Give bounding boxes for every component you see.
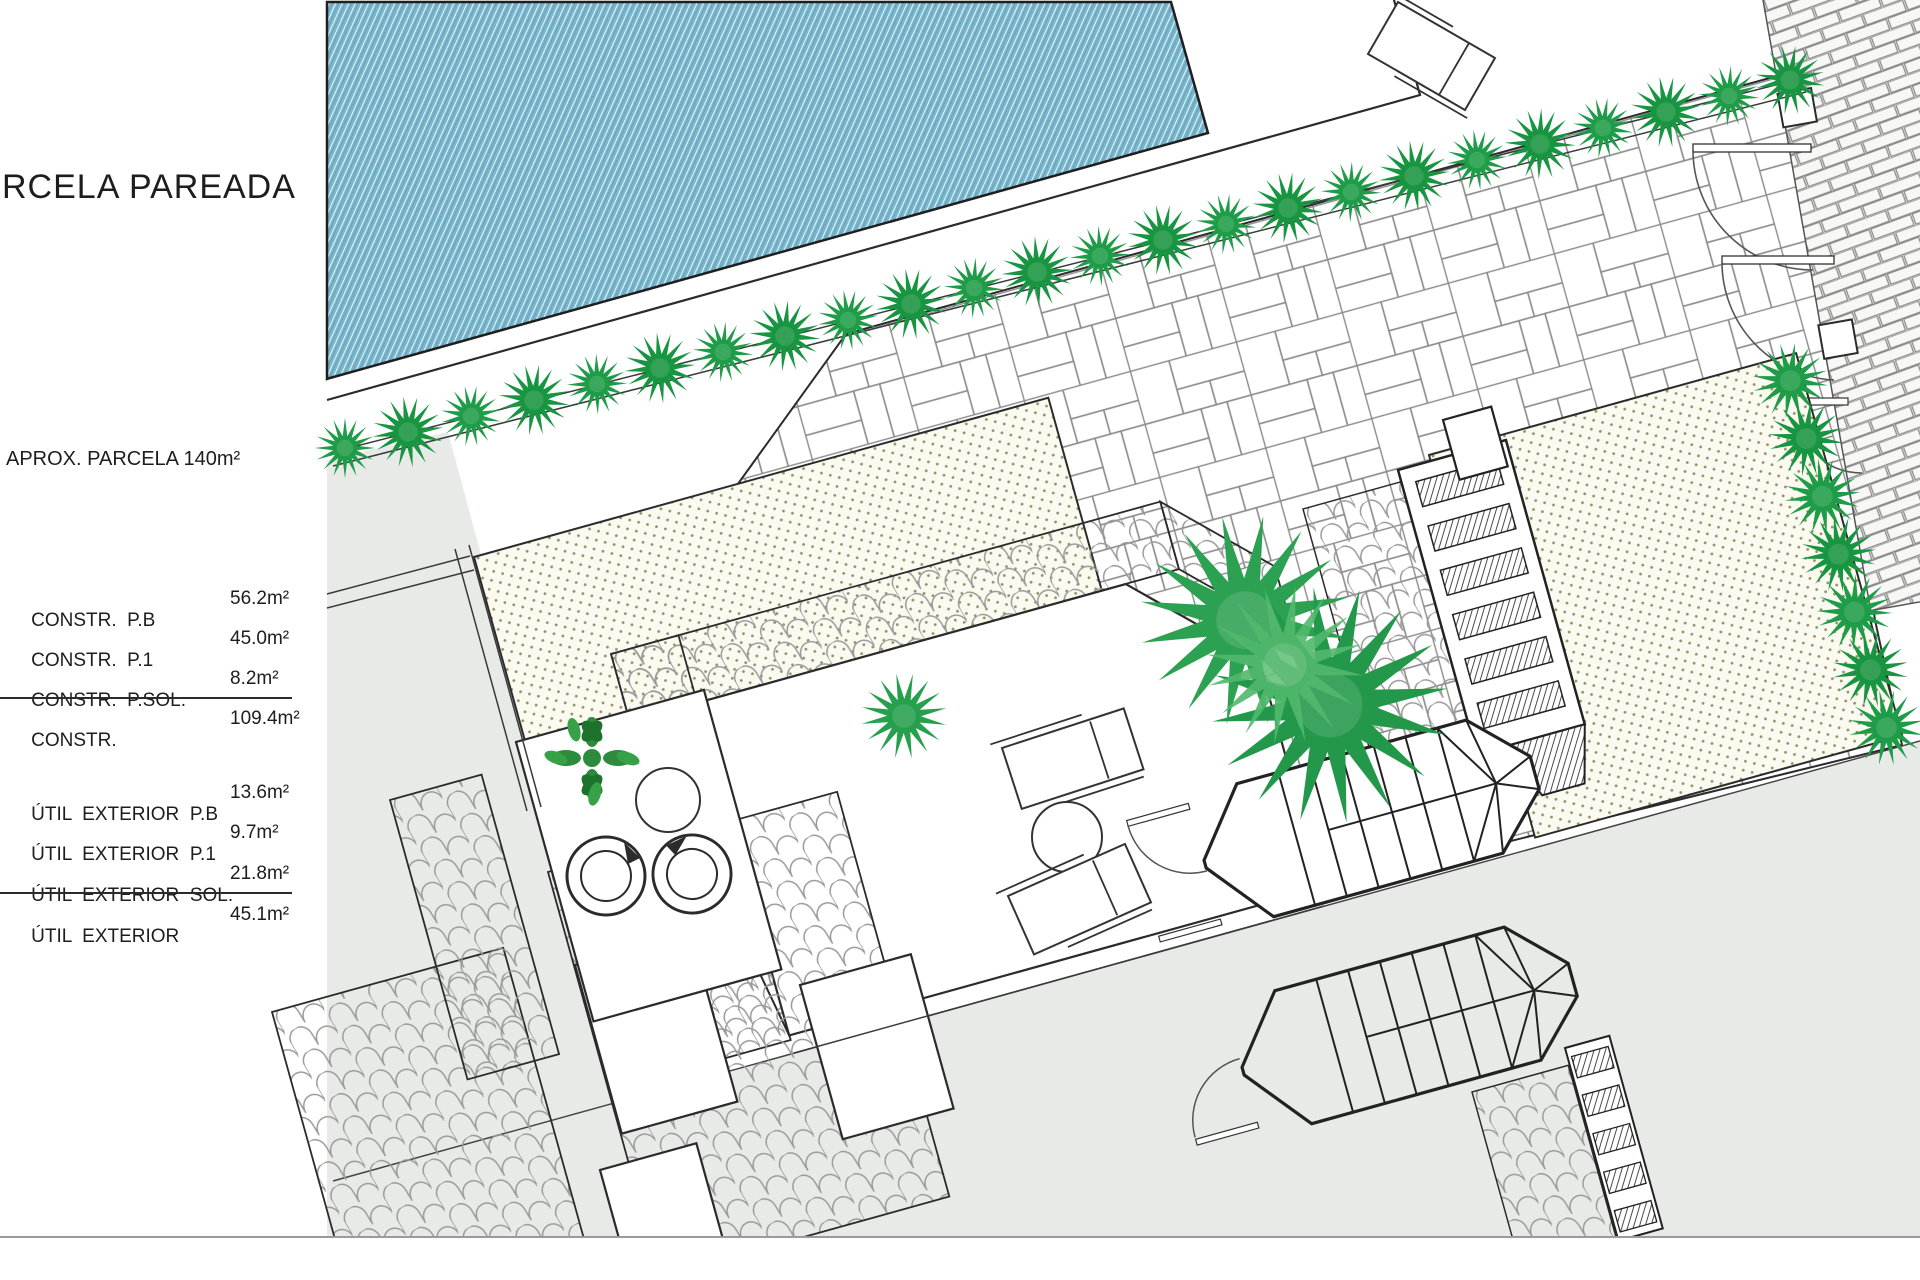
row-label: CONSTR.: [31, 730, 117, 751]
legend-panel: RCELA PAREADA APROX. PARCELA 140m² CONST…: [0, 0, 330, 1280]
row-value: 56.2m²: [230, 588, 289, 610]
wall-pilaster: [1818, 319, 1857, 358]
table-divider: [0, 892, 292, 894]
row-label: ÚTIL EXTERIOR: [31, 926, 179, 947]
row-value: 109.4m²: [230, 708, 300, 730]
row-value: 45.0m²: [230, 628, 289, 650]
door-leaf: [1693, 144, 1811, 152]
page-title: RCELA PAREADA: [2, 168, 296, 207]
site-plan-page: RCELA PAREADA APROX. PARCELA 140m² CONST…: [0, 0, 1920, 1280]
row-value: 13.6m²: [230, 782, 289, 804]
door-leaf: [1722, 256, 1834, 264]
row-value: 8.2m²: [230, 668, 279, 690]
row-label: ÚTIL EXTERIOR SOL.: [31, 885, 233, 906]
row-value: 21.8m²: [230, 863, 289, 885]
parcel-note: APROX. PARCELA 140m²: [6, 448, 240, 471]
table-total-row: ÚTIL EXTERIOR 45.1m²: [10, 904, 179, 992]
table-divider: [0, 697, 292, 699]
side-table: [636, 768, 700, 832]
row-value: 9.7m²: [230, 822, 279, 844]
row-label: ÚTIL EXTERIOR P.1: [31, 844, 216, 865]
egg-chair-1: [567, 837, 645, 915]
row-value: 45.1m²: [230, 904, 289, 926]
